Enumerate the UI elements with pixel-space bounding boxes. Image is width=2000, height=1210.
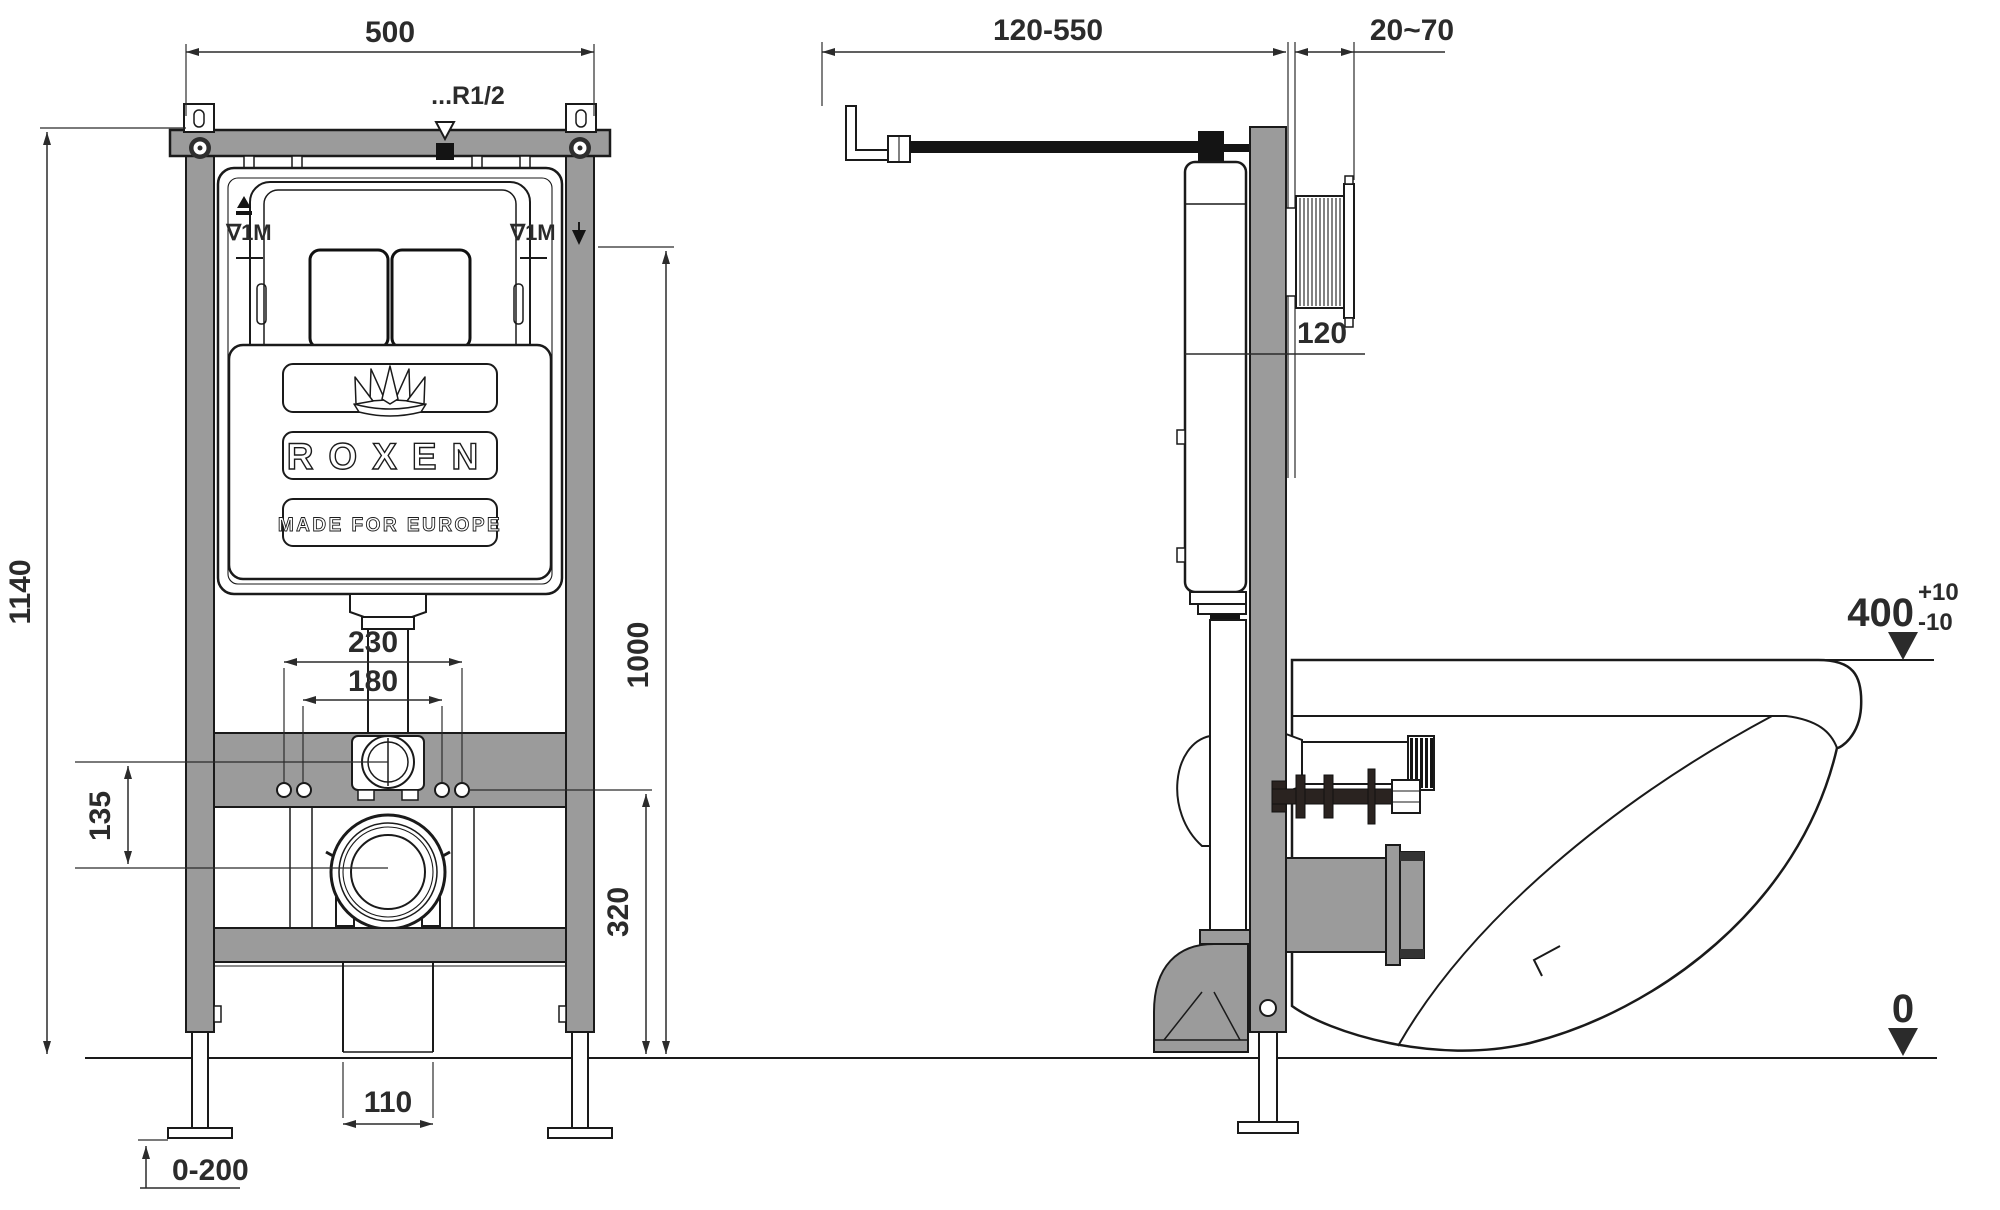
- installation-frame-drawing: ...R1/2 ∇1M ∇1M: [0, 0, 2000, 1210]
- right-rail: [566, 130, 594, 1032]
- supply-pipe: [910, 141, 1200, 153]
- svg-text:110: 110: [364, 1086, 412, 1119]
- flush-button-large: [392, 250, 470, 348]
- level-triangle-icon: [1888, 1028, 1918, 1056]
- drain-connector-side: [1286, 845, 1424, 965]
- level-mark-400: 400 +10 -10: [1818, 579, 1959, 660]
- adjustable-foot-right: [548, 1032, 612, 1138]
- svg-text:-10: -10: [1918, 609, 1953, 636]
- leg-tab-left: [214, 1006, 221, 1022]
- dimension-110: 110: [343, 1062, 433, 1124]
- logo-panel: ROXEN MADE FOR EUROPE: [229, 345, 551, 579]
- water-thread-label: ...R1/2: [431, 82, 505, 110]
- svg-text:+10: +10: [1918, 579, 1959, 606]
- flush-button-small: [310, 250, 388, 348]
- level-mark-0: 0: [1888, 987, 1918, 1056]
- flush-bend-fitting: [352, 736, 424, 800]
- brand-logo-text: ROXEN: [287, 436, 494, 477]
- flush-plate-housing: [1286, 176, 1354, 327]
- dimension-supply-120-550: 120-550: [822, 14, 1286, 106]
- svg-text:320: 320: [602, 887, 635, 937]
- toilet-bowl-profile: [1292, 660, 1861, 1051]
- dimension-height-1140: 1140: [4, 128, 186, 1054]
- brand-tagline-text: MADE FOR EUROPE: [278, 515, 502, 536]
- svg-text:1000: 1000: [622, 622, 655, 689]
- dimension-plate-20-70: 20~70: [1295, 14, 1454, 180]
- front-view: ...R1/2 ∇1M ∇1M: [4, 16, 674, 1188]
- fixing-hole: [435, 783, 449, 797]
- fixing-hole: [297, 783, 311, 797]
- drain-socket: [326, 815, 450, 929]
- svg-text:500: 500: [365, 16, 415, 49]
- svg-text:400: 400: [1847, 591, 1914, 635]
- svg-text:1140: 1140: [4, 559, 37, 624]
- side-view: 120-550 20~70 120 400 +10 -10 0: [822, 14, 1959, 1133]
- top-crossbar: [170, 130, 610, 156]
- dimension-width-500: 500: [186, 16, 594, 116]
- bolt-nut: [1392, 780, 1420, 813]
- frame-column-side: [1250, 127, 1286, 1032]
- supply-wall-bracket: [846, 106, 888, 160]
- adjustable-foot-left: [168, 1032, 232, 1138]
- svg-text:230: 230: [348, 626, 398, 659]
- level-1m-right-label: ∇1M: [509, 220, 555, 245]
- svg-text:0-200: 0-200: [172, 1154, 249, 1187]
- flush-bend-pipe: [350, 594, 426, 733]
- svg-text:20~70: 20~70: [1370, 14, 1454, 47]
- level-1m-left-label: ∇1M: [225, 220, 271, 245]
- svg-text:120: 120: [1297, 317, 1347, 350]
- left-rail: [186, 130, 214, 1032]
- svg-text:120-550: 120-550: [993, 14, 1103, 47]
- technical-drawing-page: ...R1/2 ∇1M ∇1M: [0, 0, 2000, 1210]
- rail-bolt-hole-left: [189, 137, 211, 159]
- svg-text:180: 180: [348, 665, 398, 698]
- fixing-hole: [455, 783, 469, 797]
- fixing-hole: [277, 783, 291, 797]
- dimension-feet-0-200: 0-200: [138, 1140, 249, 1188]
- cistern-side: [1177, 162, 1246, 936]
- rail-bolt-hole-right: [569, 137, 591, 159]
- leg-tab-right: [559, 1006, 566, 1022]
- level-triangle-icon: [1888, 632, 1918, 660]
- column-hole: [1260, 1000, 1276, 1016]
- lower-crossbar: [214, 928, 566, 962]
- svg-text:135: 135: [84, 791, 117, 841]
- svg-text:0: 0: [1892, 987, 1914, 1031]
- wall-bracket-right: [566, 104, 596, 132]
- water-inlet-square-icon: [436, 143, 454, 160]
- supply-valve: [1198, 131, 1224, 162]
- cistern-outlet-pipe: [1210, 620, 1246, 936]
- drain-elbow: [1154, 930, 1252, 1052]
- drain-spigot: [343, 962, 433, 1052]
- wall-bracket-left: [184, 104, 214, 132]
- water-supply-assembly: [846, 106, 1254, 162]
